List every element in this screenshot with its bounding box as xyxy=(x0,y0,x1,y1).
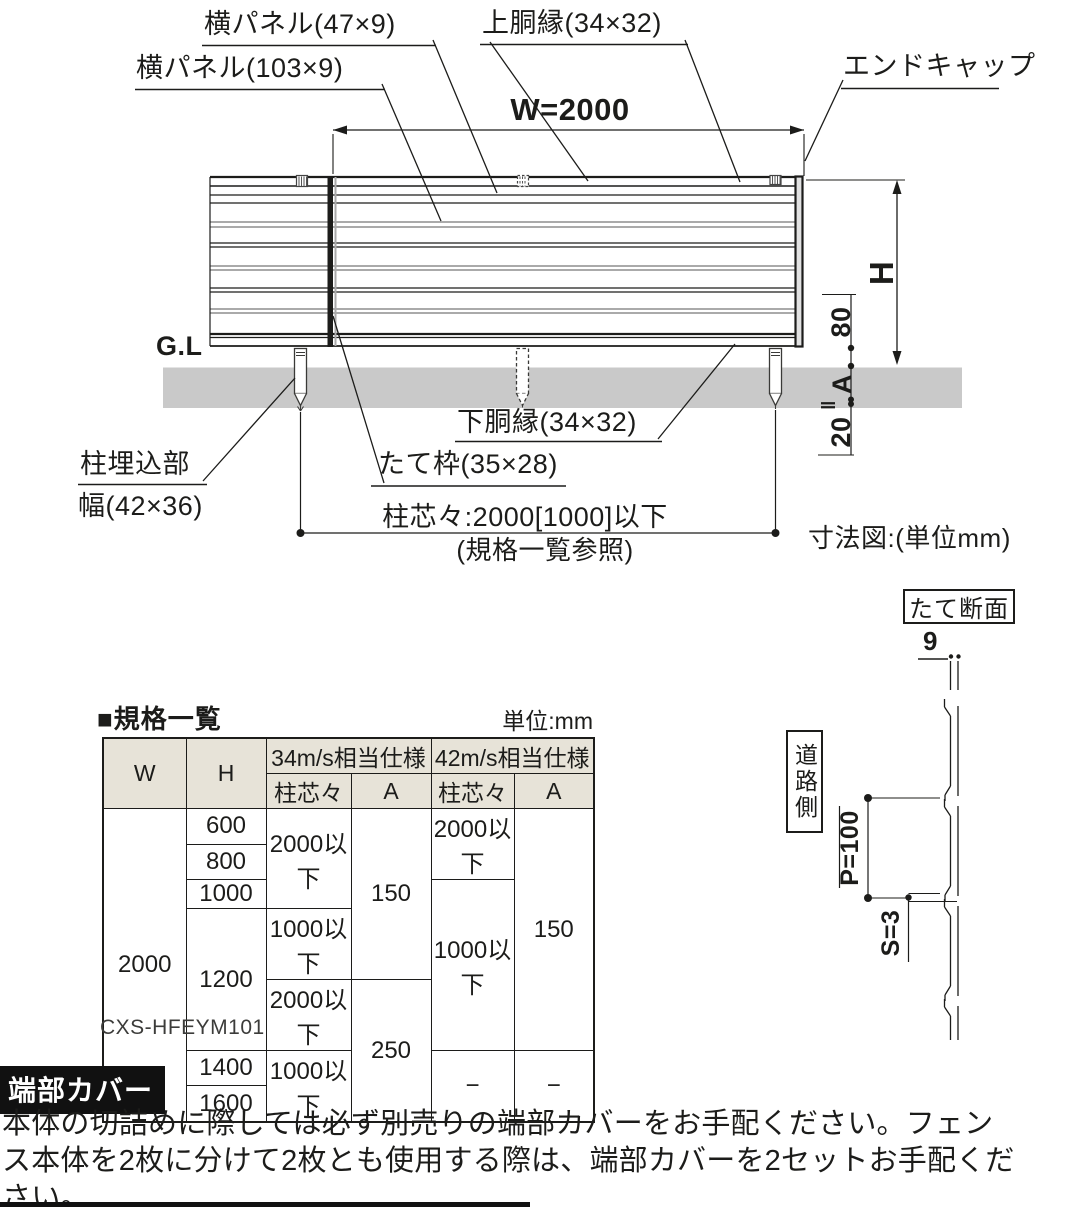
col-header-pitch-34: 柱芯々 xyxy=(266,774,351,809)
ground-level-label: G.L xyxy=(156,332,203,360)
section-s-dimension xyxy=(905,894,957,963)
cell-34-a-1: 150 xyxy=(351,809,431,980)
h-dimension-label: H xyxy=(865,218,897,328)
cell-42-a-1: 150 xyxy=(514,809,594,1051)
cell-h-1000: 1000 xyxy=(186,880,266,909)
col-header-w: W xyxy=(103,738,186,809)
cell-h-800: 800 xyxy=(186,844,266,880)
end-cap-bar xyxy=(796,177,803,347)
cell-h-1400: 1400 xyxy=(186,1051,266,1086)
col-header-a-34: A xyxy=(351,774,431,809)
cell-42-pitch-1: 2000以下 xyxy=(431,809,514,880)
section-dim-p: P=100 xyxy=(837,793,869,903)
section-title-box: たて断面 xyxy=(903,589,1015,624)
cell-34-pitch-2: 1000以下 xyxy=(266,909,351,980)
cell-h-600: 600 xyxy=(186,809,266,845)
label-underlines xyxy=(78,45,999,660)
cell-34-pitch-1: 2000以下 xyxy=(266,809,351,909)
w-dimension-value: W=2000 xyxy=(470,94,670,127)
fence-elevation-lines xyxy=(210,177,796,346)
bottom-partial-bar xyxy=(0,1202,530,1207)
col-header-a-42: A xyxy=(514,774,594,809)
col-header-spec34: 34m/s相当仕様 xyxy=(266,738,431,774)
col-header-h: H xyxy=(186,738,266,809)
label-tate-waku: たて枠(35×28) xyxy=(378,450,558,478)
post-pitch-text: 柱芯々:2000[1000]以下 xyxy=(360,503,690,531)
post-top-middle xyxy=(518,176,529,187)
label-lower-rail: 下胴縁(34×32) xyxy=(457,408,637,436)
fence-spec-sheet: 横パネル(47×9) 上胴縁(34×32) 横パネル(103×9) エンドキャッ… xyxy=(0,0,1065,1207)
label-post-embed-2: 幅(42×36) xyxy=(78,492,203,520)
dim-20-label: 20 xyxy=(827,377,859,487)
section-dim-9: 9 xyxy=(923,628,938,655)
cell-42-pitch-2: 1000以下 xyxy=(431,880,514,1051)
label-upper-rail: 上胴縁(34×32) xyxy=(482,9,662,37)
col-header-pitch-42: 柱芯々 xyxy=(431,774,514,809)
post-top-left xyxy=(297,176,308,187)
end-cover-note: 本体の切詰めに際しては必ず別売りの端部カバーをお手配ください。フェンス本体を2枚… xyxy=(2,1106,1016,1207)
dimension-note: 寸法図:(単位mm) xyxy=(808,525,1011,552)
label-end-cap: エンドキャップ xyxy=(843,52,1036,80)
cell-34-a-2: 250 xyxy=(351,980,431,1123)
col-header-spec42: 42m/s相当仕様 xyxy=(431,738,594,774)
label-yoko-panel-47: 横パネル(47×9) xyxy=(204,10,396,38)
section-dim-s: S=3 xyxy=(878,878,910,988)
spec-table-unit: 単位:mm xyxy=(450,702,593,736)
post-top-right xyxy=(770,176,781,185)
road-side-label: 道路側 xyxy=(786,730,823,833)
section-profile xyxy=(945,654,961,1040)
cell-34-pitch-3: 2000以下 xyxy=(266,980,351,1051)
label-yoko-panel-103: 横パネル(103×9) xyxy=(136,54,343,82)
model-number: CXS-HFEYM101 xyxy=(100,1016,265,1040)
post-pitch-note: (規格一覧参照) xyxy=(400,537,690,564)
spec-table-title: ■規格一覧 xyxy=(97,699,222,736)
label-post-embed-1: 柱埋込部 xyxy=(80,450,190,478)
spec-table: W H 34m/s相当仕様 42m/s相当仕様 柱芯々 A 柱芯々 A 2000… xyxy=(102,737,595,1123)
